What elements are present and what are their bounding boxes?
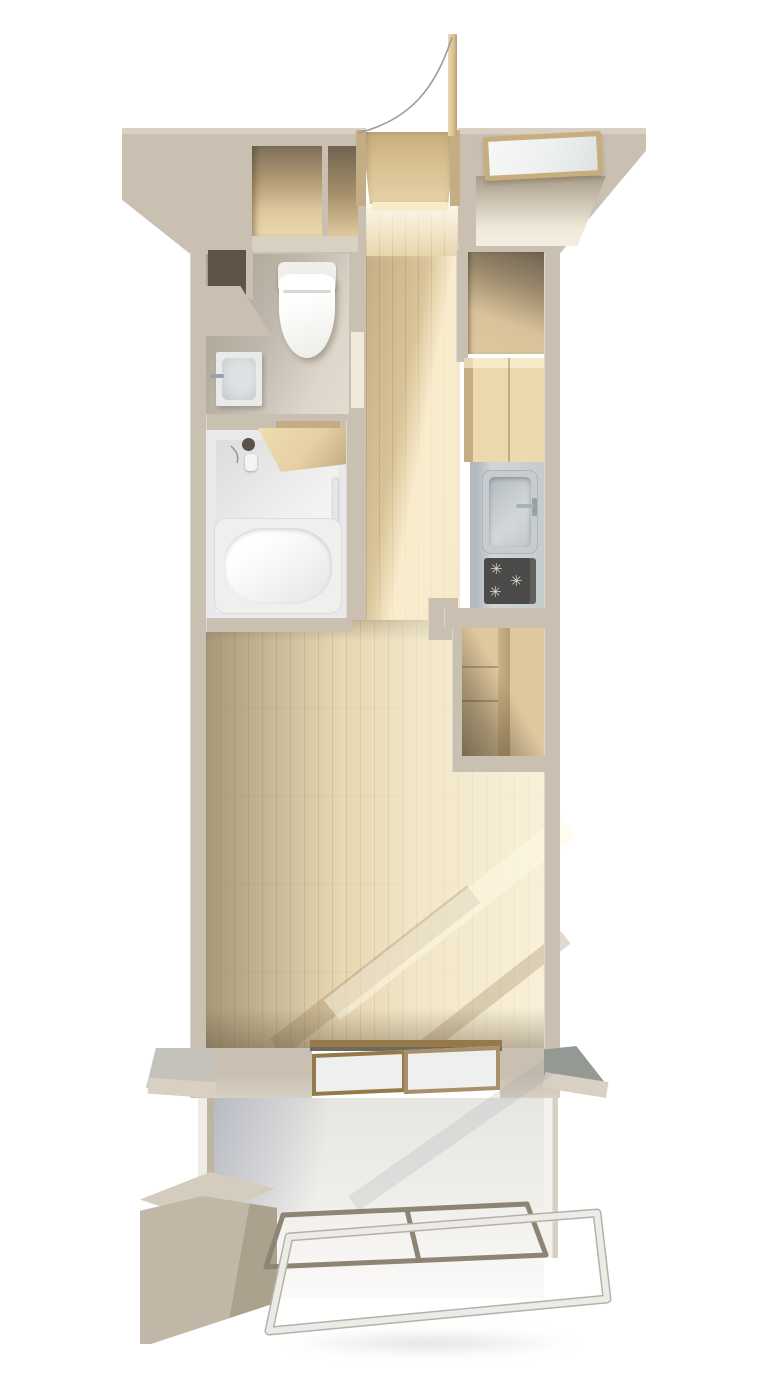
shoe-closet <box>252 146 322 236</box>
apartment-floorplan-render: ✳ ✳ ✳ <box>0 0 768 1392</box>
closet-wall <box>456 250 468 362</box>
right-outer-wall <box>544 246 560 1098</box>
sliding-window-pane <box>404 1046 500 1094</box>
shoe-closet-small <box>328 146 358 236</box>
left-outer-wall <box>190 252 206 1098</box>
genkan-floor <box>360 132 458 204</box>
hand-basin <box>216 352 262 406</box>
shower-mount <box>242 438 255 451</box>
cabinet-top <box>464 358 544 368</box>
bottom-wall-left <box>206 1048 312 1098</box>
basin-bowl <box>222 358 256 400</box>
sink-basin <box>489 477 531 547</box>
toilet-sliding-door <box>351 332 364 408</box>
bathtub-basin <box>224 528 332 604</box>
ground-shadow <box>280 1330 580 1356</box>
shower-head <box>245 454 257 471</box>
hallway-sun-streak <box>366 256 460 640</box>
toilet-lid-seam <box>283 290 331 293</box>
door-track <box>276 421 340 429</box>
door-frame-post <box>356 130 366 206</box>
storage-window <box>483 131 603 181</box>
gas-stove: ✳ ✳ ✳ <box>484 558 536 604</box>
living-closet-bottom-wall <box>452 756 560 772</box>
upper-closet <box>468 252 544 354</box>
left-eave-edge <box>148 1078 217 1099</box>
entry-step-ledge <box>252 236 358 252</box>
kitchen-sink <box>482 470 538 554</box>
utility-box <box>140 1196 277 1344</box>
bath-hall-wall <box>346 420 366 620</box>
entry-step <box>372 202 448 211</box>
balcony-right-wall <box>544 1098 558 1258</box>
storage-room-floor <box>476 176 606 246</box>
kitchen-bottom-wall <box>444 608 560 628</box>
entrance-door <box>448 34 457 136</box>
cabinet-divider <box>508 358 510 462</box>
bath-living-wall <box>206 618 352 632</box>
stove-burner-icon: ✳ <box>490 562 503 577</box>
living-closet-wall <box>452 628 462 764</box>
stove-burner-icon: ✳ <box>489 585 502 600</box>
stove-burner-icon: ✳ <box>510 574 523 589</box>
closet-shadow <box>462 628 544 756</box>
sliding-window-pane <box>312 1050 406 1096</box>
door-frame-post <box>450 130 460 206</box>
kitchen-cabinet <box>464 358 544 462</box>
basin-faucet <box>210 374 224 378</box>
bathtub <box>214 518 342 614</box>
storage-window-glass <box>488 136 598 176</box>
door-swing-arc <box>358 37 452 133</box>
living-closet <box>462 628 544 756</box>
kitchen-faucet-spout <box>516 504 534 508</box>
